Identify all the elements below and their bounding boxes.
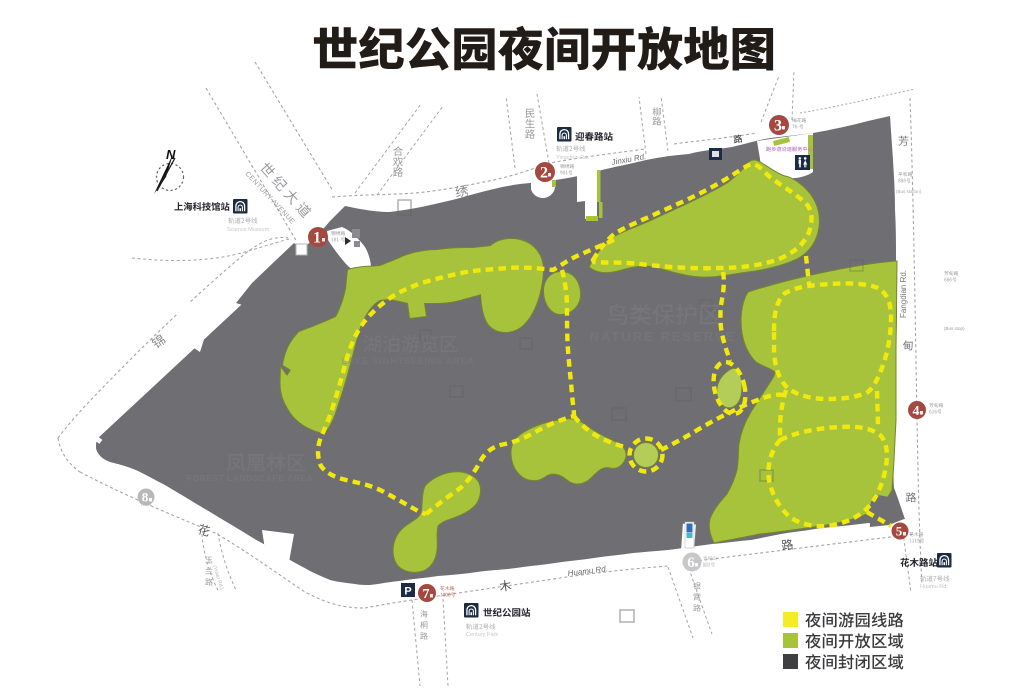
svg-text:7: 7 [423,587,430,602]
svg-text:Science Museum: Science Museum [227,227,270,233]
svg-text:Fangdian Rd.: Fangdian Rd. [899,270,908,318]
svg-text:Century Park: Century Park [466,632,498,638]
svg-text:1: 1 [313,230,321,247]
svg-text:FOREST LANDSCAPE AREA: FOREST LANDSCAPE AREA [187,473,313,483]
svg-text:5: 5 [896,524,903,539]
svg-text:4: 4 [913,404,920,419]
svg-text:(Bus station): (Bus station) [896,189,922,194]
svg-text:6: 6 [687,555,695,571]
svg-text:NATURE RESERVE: NATURE RESERVE [590,329,737,344]
svg-text:3: 3 [774,118,782,135]
svg-text:LAKE SIGHTSEEING AREA: LAKE SIGHTSEEING AREA [342,356,475,366]
svg-text:2: 2 [540,165,548,182]
svg-text:N: N [166,147,176,162]
svg-text:P: P [404,586,411,598]
svg-text:8: 8 [142,490,149,505]
svg-text:Huamu Rd.: Huamu Rd. [920,584,948,590]
svg-text:(Bus stop): (Bus stop) [944,326,965,331]
svg-text:Yingchun Rd.: Yingchun Rd. [556,155,589,161]
